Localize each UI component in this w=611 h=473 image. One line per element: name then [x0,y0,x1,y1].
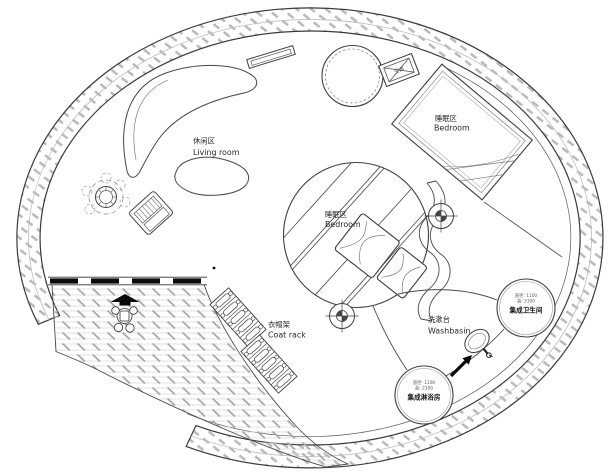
living-room-label-en: Living room [193,148,240,157]
plant-icon [82,173,130,214]
ac-unit-icon: 空调 [379,53,420,86]
bathroom-pod-spec2: 高: 2100 [517,298,535,305]
center-bedroom-label-zh: 睡眠区 [325,210,347,219]
bathroom-pod-name: 集成卫生间 [509,306,543,315]
bathroom-pod: 直径: 1100 高: 2100 集成卫生间 [497,279,555,337]
wall-shelf [247,46,296,69]
floor-plan-drawing: 休闲区 Living room 空调 睡眠区 Bedroom [0,0,611,473]
shower-pod: 直径: 1100 高: 2100 集成淋浴房 [395,366,453,424]
upper-bedroom-label-en: Bedroom [434,124,470,133]
downlight-icon-1 [425,200,458,233]
coffee-table [175,157,249,195]
living-room-label-zh: 休闲区 [193,137,215,146]
coat-rack-label-zh: 衣帽架 [268,320,290,329]
side-chair [128,190,173,235]
shower-pod-spec1: 直径: 1100 [413,379,436,386]
bathroom-pod-spec1: 直径: 1100 [515,292,538,299]
partition-line [484,202,562,257]
washbasin-label-zh: 洗漱台 [428,315,450,324]
center-bedroom-label-en: Bedroom [325,220,361,229]
floor-plan: 休闲区 Living room 空调 睡眠区 Bedroom [0,0,611,473]
washbasin-label-en: Washbasin [428,327,470,336]
center-bedroom-zone: 睡眠区 Bedroom [284,163,430,308]
reference-dot [213,267,216,270]
washroom-zone: 洗漱台 Washbasin 直径: 1100 高: 2100 集成卫生间 直径:… [373,279,555,424]
straight-wall [48,277,207,285]
round-table [322,46,383,107]
shower-pod-spec2: 高: 2100 [415,385,433,392]
coat-rack-label-en: Coat rack [268,331,306,340]
direction-arrow-icon [451,355,472,376]
shower-pod-name: 集成淋浴房 [407,393,441,402]
upper-bedroom-label-zh: 睡眠区 [435,114,457,123]
